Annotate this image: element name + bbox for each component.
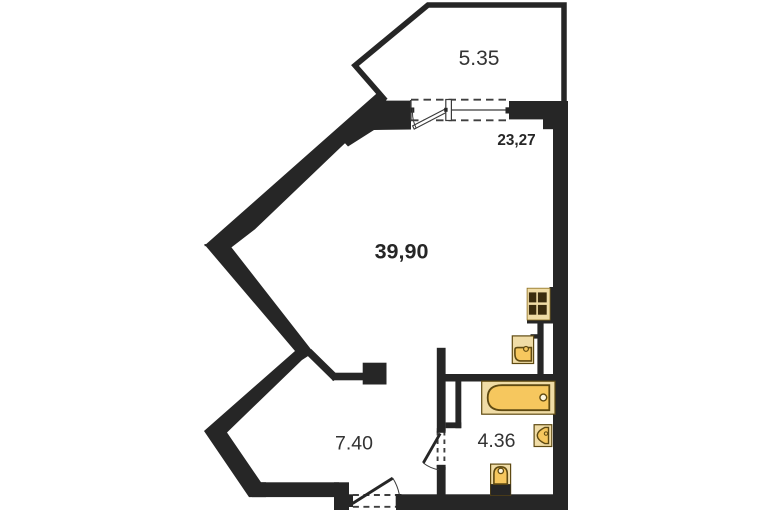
svg-text:4.36: 4.36 [478, 430, 516, 452]
svg-text:39,90: 39,90 [375, 240, 429, 264]
svg-text:23,27: 23,27 [497, 132, 535, 149]
svg-text:5.35: 5.35 [459, 47, 500, 70]
svg-text:7.40: 7.40 [335, 433, 373, 455]
